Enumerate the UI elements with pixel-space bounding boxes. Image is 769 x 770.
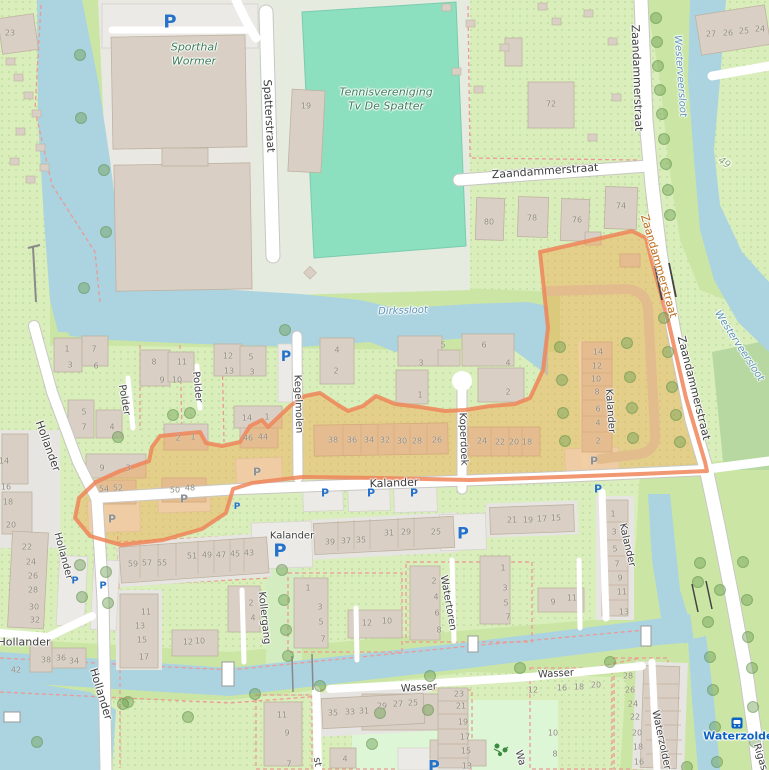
tree-icon [79,283,90,294]
tree-icon [652,37,663,48]
tree-icon [667,382,678,393]
tree-icon [168,410,179,421]
tree-icon [183,712,194,723]
tree-icon [425,671,436,682]
tree-icon [671,410,682,421]
tree-icon [375,708,386,719]
tree-icon [113,432,124,443]
tree-icon [748,702,759,713]
tree-icon [281,625,292,636]
tree-icon [32,737,43,748]
tree-icon [655,85,666,96]
tree-icon [703,617,714,628]
tree-icon [279,595,290,606]
tree-icon [250,689,261,700]
map-canvas [0,0,769,770]
tree-icon [705,652,716,663]
tree-icon [75,50,86,61]
tree-icon [103,598,114,609]
tree-icon [515,663,526,674]
tree-icon [185,408,196,419]
tree-icon [101,227,112,238]
tree-icon [625,372,636,383]
tree-icon [555,342,566,353]
tree-icon [743,632,754,643]
tree-icon [659,313,670,324]
tree-icon [712,757,723,768]
road-spatterstraat [266,12,273,256]
road-kegelmolen [297,336,298,478]
tree-icon [742,595,753,606]
tree-icon [627,403,638,414]
tree-icon [750,737,761,748]
sporthal-building [111,35,247,149]
tree-icon [659,134,670,145]
tree-icon [283,651,294,662]
tree-icon [693,577,704,588]
tennis-pitch [302,2,466,258]
tree-icon [75,560,86,571]
tree-icon [710,722,721,733]
tree-icon [558,408,569,419]
tree-icon [738,557,749,568]
tree-icon [628,433,639,444]
tree-icon [277,565,288,576]
tree-icon [560,436,571,447]
tree-icon [557,375,568,386]
tree-icon [747,663,758,674]
tree-icon [665,210,676,221]
tree-icon [605,657,616,668]
tree-icon [682,762,693,770]
tree-icon [77,592,88,603]
tree-icon [708,685,719,696]
tree-icon [367,739,378,750]
tree-icon [315,681,326,692]
tree-icon [675,437,686,448]
road-watertoren [452,560,454,641]
tree-icon [118,699,129,710]
sporthal-building-2 [114,163,252,291]
tree-icon [653,61,664,72]
tree-icon [280,325,291,336]
tree-icon [695,558,706,569]
tree-icon [622,338,633,349]
tree-icon [651,13,662,24]
road-waterzolder [652,662,657,770]
tree-icon [101,567,112,578]
tree-icon [99,165,110,176]
tree-icon [663,347,674,358]
tree-icon [423,705,434,716]
map-viewport[interactable]: Waterzolder SpatterstraatZaandammerstraa… [0,0,769,770]
tree-icon [715,585,726,596]
tree-icon [657,109,668,120]
tree-icon [661,159,672,170]
tree-icon [76,113,87,124]
tree-icon [663,185,674,196]
